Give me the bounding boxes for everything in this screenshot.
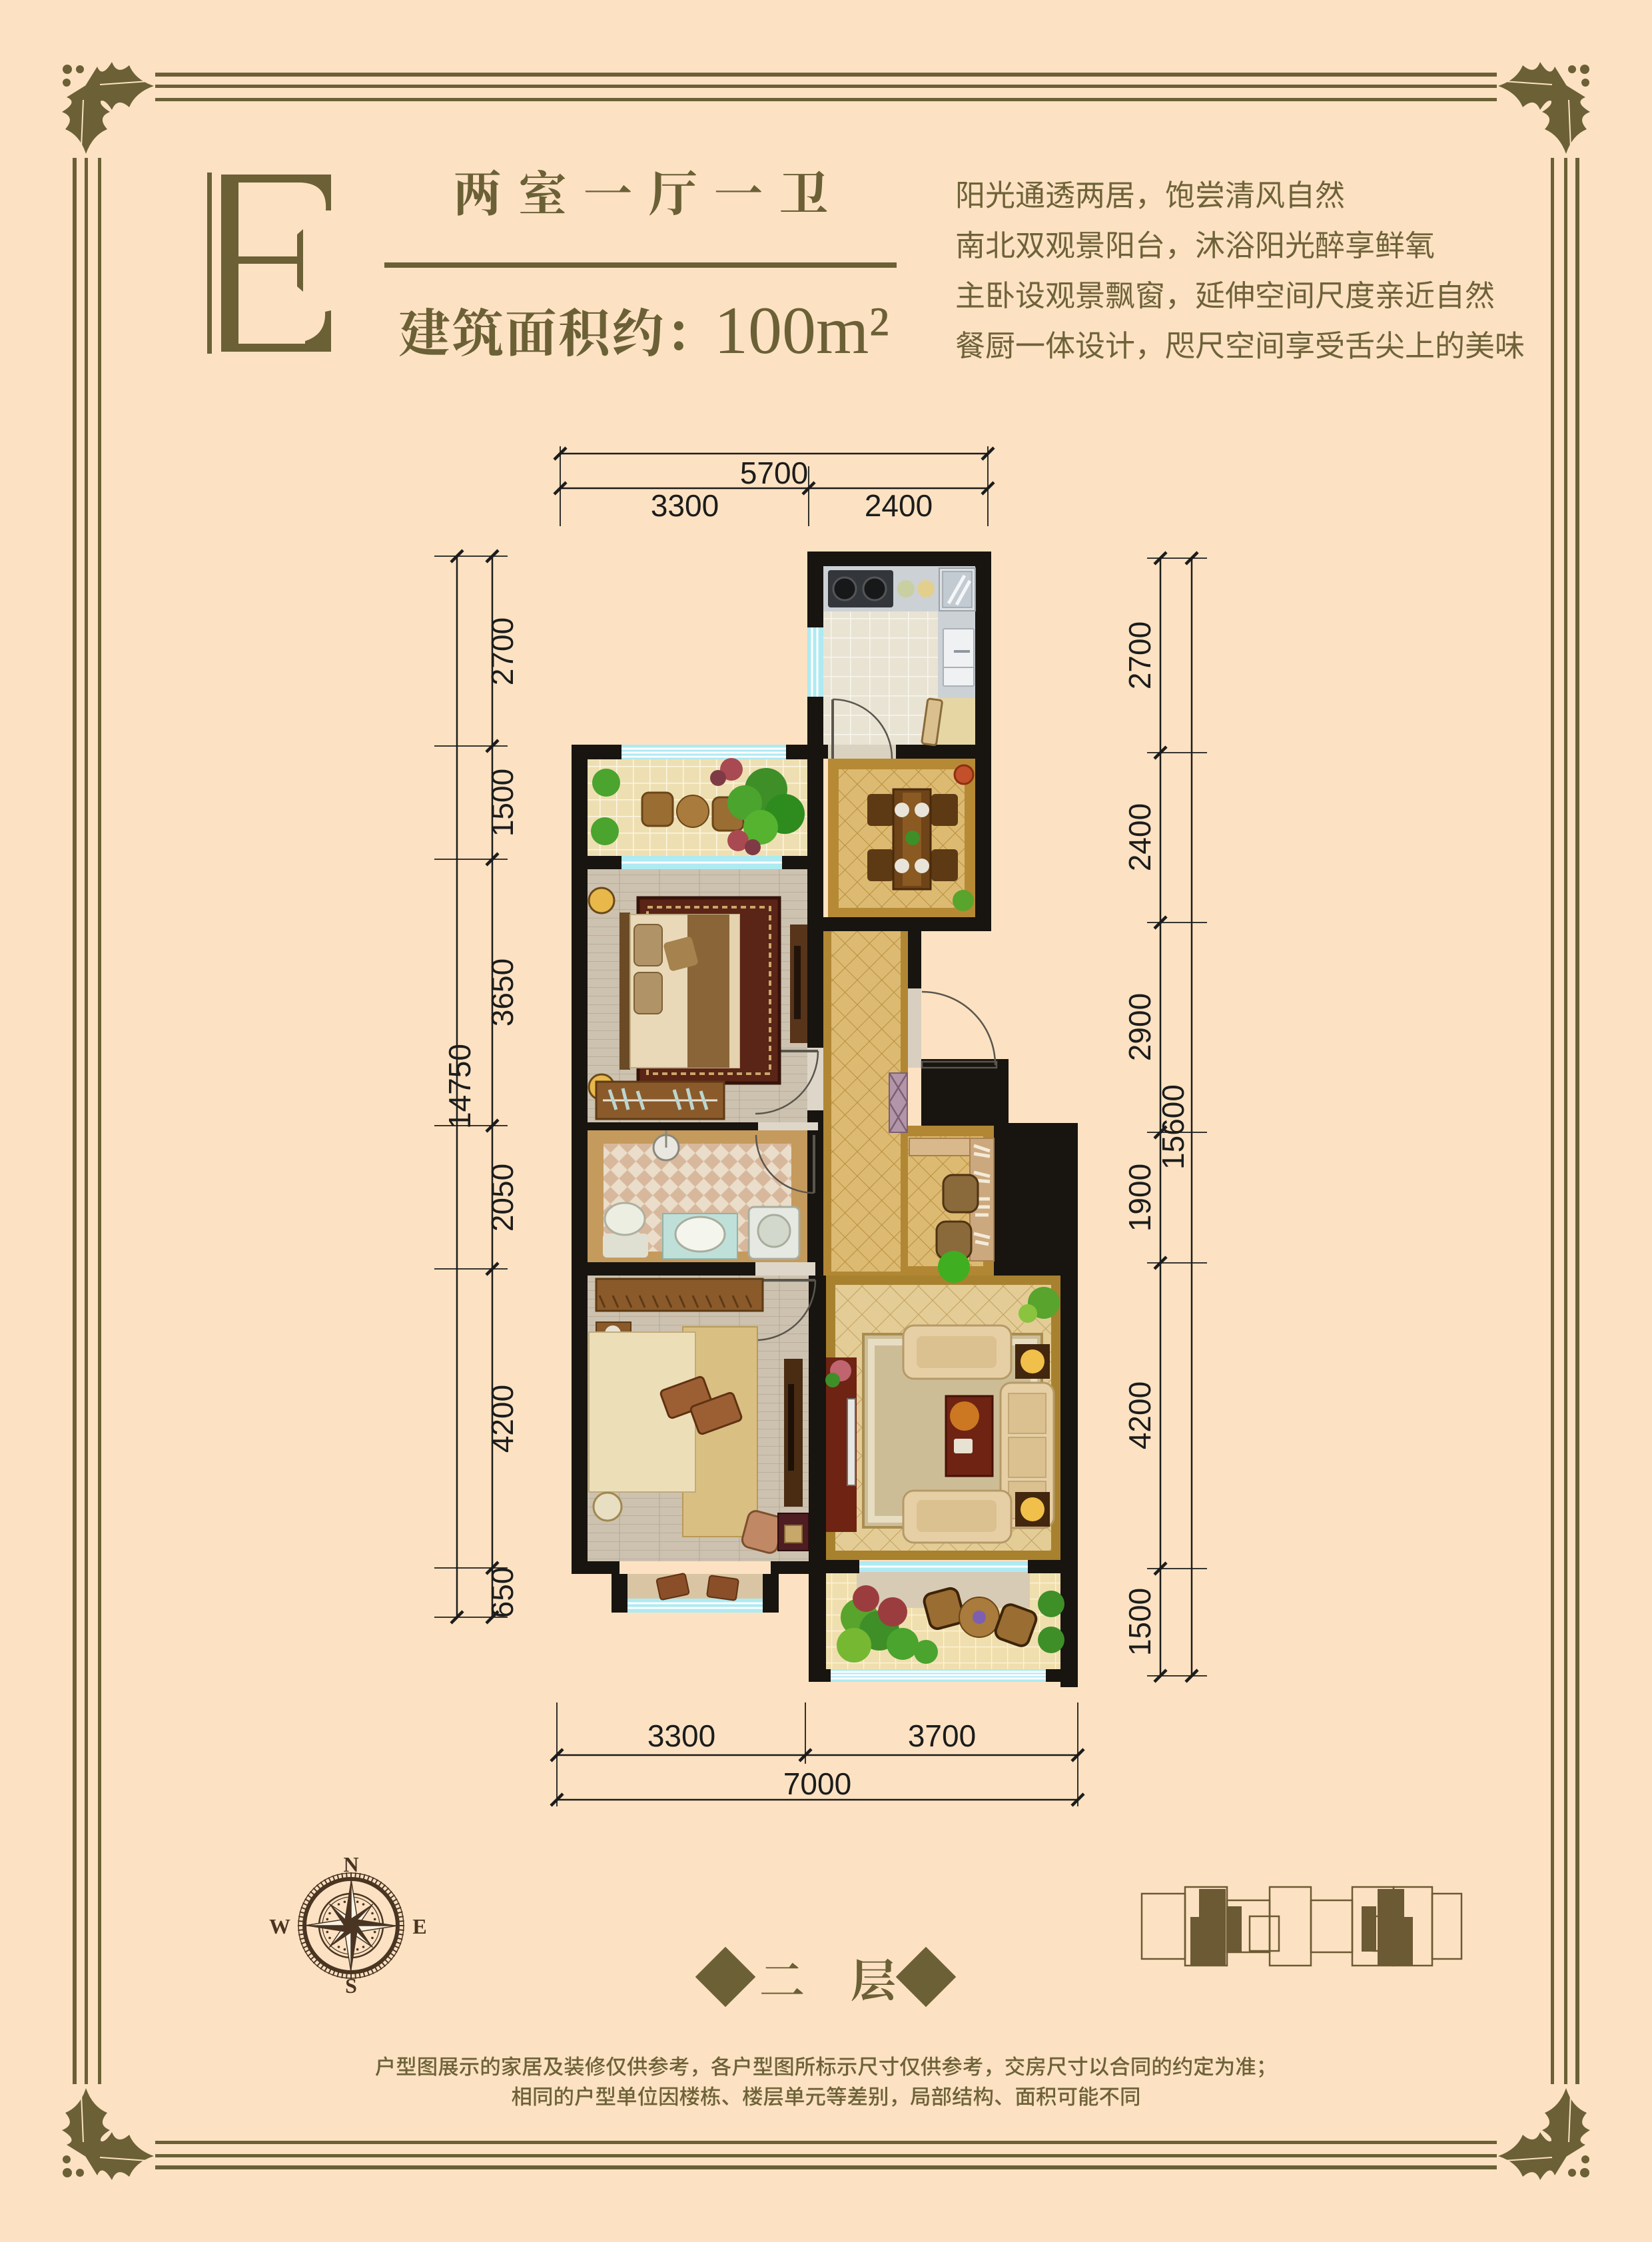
svg-text:3650: 3650	[485, 958, 520, 1026]
svg-text:2700: 2700	[1122, 621, 1157, 689]
svg-text:S: S	[345, 1974, 357, 1998]
svg-text:2400: 2400	[1122, 803, 1157, 871]
svg-text:W: W	[269, 1914, 290, 1938]
svg-text:2900: 2900	[1122, 993, 1157, 1061]
svg-text:E: E	[412, 1914, 426, 1938]
svg-text:14750: 14750	[442, 1044, 477, 1129]
svg-text:1500: 1500	[485, 769, 520, 837]
svg-text:N: N	[343, 1852, 358, 1876]
svg-text:4200: 4200	[485, 1385, 520, 1453]
svg-text:3700: 3700	[908, 1718, 976, 1753]
svg-text:15600: 15600	[1156, 1084, 1190, 1170]
svg-text:3300: 3300	[651, 488, 719, 523]
svg-text:2050: 2050	[485, 1164, 520, 1232]
svg-text:2700: 2700	[485, 617, 520, 685]
svg-text:2400: 2400	[865, 488, 933, 523]
svg-text:1500: 1500	[1122, 1588, 1157, 1656]
svg-text:100m²: 100m²	[714, 293, 889, 368]
svg-text:650: 650	[485, 1567, 520, 1619]
svg-text:7000: 7000	[783, 1766, 851, 1801]
svg-text:1900: 1900	[1122, 1164, 1157, 1232]
svg-text:3300: 3300	[647, 1718, 715, 1753]
svg-text:4200: 4200	[1122, 1381, 1157, 1449]
svg-text:5700: 5700	[740, 456, 808, 490]
